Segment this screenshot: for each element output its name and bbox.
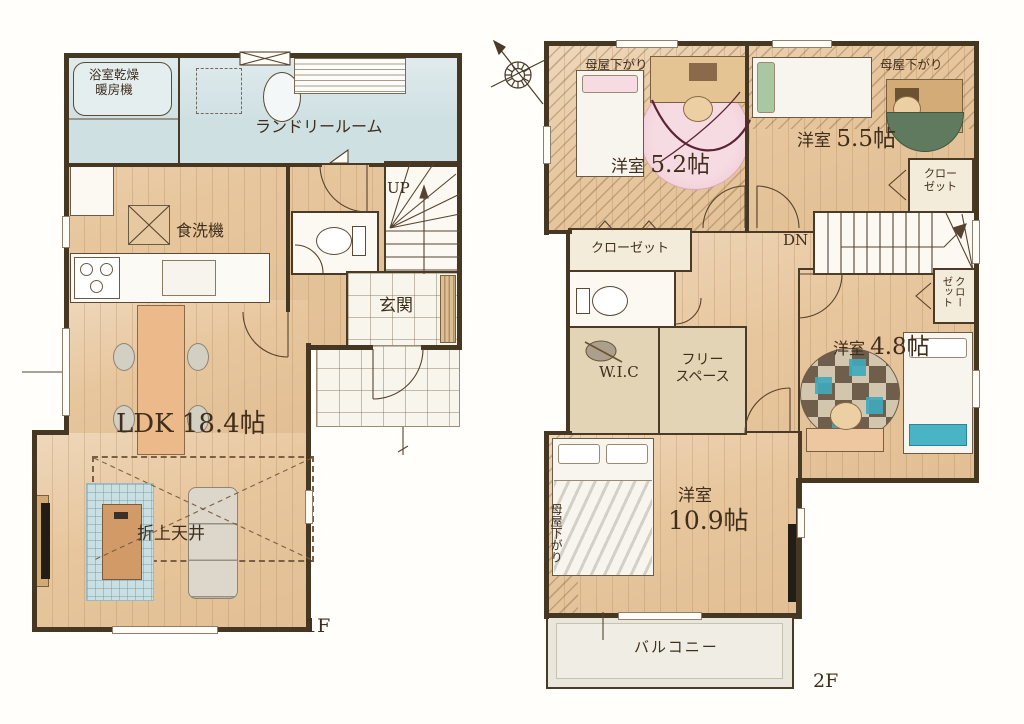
label-floor-1: 1F (305, 615, 330, 637)
label-moya-52: 母屋下がり (585, 58, 648, 73)
chair-48 (830, 402, 862, 430)
room-55-name: 洋室 (797, 131, 831, 151)
toilet-tank-2f (576, 288, 590, 314)
label-balcony: バルコニー (634, 639, 719, 657)
free-space-line1: フリー (660, 352, 745, 369)
label-wic: W.I.C (599, 364, 639, 382)
window (972, 370, 980, 408)
rug-accent (815, 377, 832, 394)
bed-55-pillow (757, 62, 775, 113)
room-52-size: 5.2帖 (650, 152, 710, 178)
floor-plan-canvas: 浴室乾燥暖房機 ランドリールーム 食洗機 UP 玄関 LDK 18.4帖 折上天… (0, 0, 1024, 724)
label-closet-55: クローゼット (924, 168, 957, 194)
bed-109-pillow (558, 444, 600, 464)
desk-item (689, 63, 717, 81)
free-space-line2: スペース (660, 369, 745, 386)
bed-48-blanket (909, 424, 967, 446)
label-ldk: LDK 18.4帖 (116, 409, 266, 440)
bed-109-pillow (606, 444, 648, 464)
room-52-name: 洋室 (611, 157, 645, 177)
wall-segment (544, 41, 979, 46)
label-room-48: 洋室 4.8帖 (833, 334, 930, 361)
window (543, 126, 551, 164)
label-dishwasher: 食洗機 (176, 222, 224, 241)
floor-2-plan (0, 0, 1024, 724)
wall-segment (566, 230, 570, 435)
room-48-size: 4.8帖 (870, 334, 930, 360)
window (972, 220, 980, 264)
label-laundry: ランドリールーム (255, 118, 383, 137)
label-room-52: 洋室 5.2帖 (611, 152, 710, 179)
window (616, 40, 678, 48)
room-109-size: 10.9帖 (668, 506, 749, 536)
room-48-name: 洋室 (833, 339, 865, 358)
stairs-2f (813, 211, 977, 275)
room-55-size: 5.5帖 (836, 126, 896, 152)
wall-segment (796, 478, 801, 619)
label-moya-55: 母屋下がり (880, 58, 943, 73)
label-stairs-up: UP (387, 180, 410, 198)
desk-48 (806, 428, 884, 452)
chair-52 (683, 96, 713, 122)
label-closet-48: クローゼット (941, 276, 966, 310)
window (618, 612, 702, 620)
label-coffered-ceiling: 折上天井 (137, 524, 205, 544)
label-moya-109: 母屋下がり (549, 503, 563, 607)
rug-accent (849, 359, 866, 376)
window (772, 40, 832, 48)
label-stairs-dn: DN (783, 232, 808, 250)
label-entrance: 玄関 (379, 296, 413, 316)
label-closet-52: クローゼット (591, 241, 669, 256)
label-room-55: 洋室 5.5帖 (797, 126, 896, 153)
window (797, 508, 805, 538)
wall-segment (796, 478, 979, 483)
label-bath-heater: 浴室乾燥暖房機 (88, 68, 140, 98)
label-room-109: 洋室 10.9帖 (668, 486, 749, 536)
bed-52-pillow (582, 75, 638, 93)
bed-109-duvet (554, 480, 652, 575)
rug-accent (866, 397, 883, 414)
label-free-space: フリー スペース (660, 352, 745, 385)
room-109-name: 洋室 (668, 486, 749, 506)
label-floor-2: 2F (813, 670, 838, 692)
toilet-bowl-2f (592, 286, 628, 316)
wall-segment (745, 43, 749, 233)
